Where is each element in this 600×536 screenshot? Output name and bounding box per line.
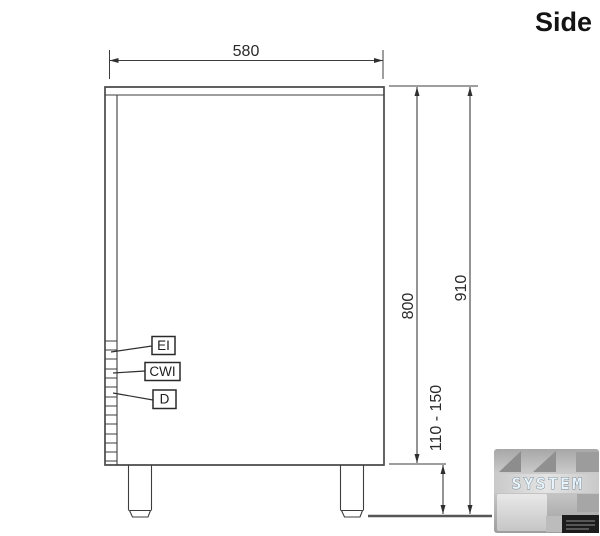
watermark-block-right [577, 494, 599, 512]
connection-strip-hatch [106, 341, 118, 461]
leader-line-d [113, 393, 153, 400]
dimension-top-width-value: 580 [233, 43, 260, 60]
leg-left [129, 465, 152, 511]
leg-right [341, 465, 364, 511]
watermark-dark-block [562, 515, 599, 533]
connection-label-d: D [160, 392, 170, 407]
watermark-block-top-right [576, 452, 599, 472]
watermark-block-bottom-mid [546, 516, 564, 532]
machine-outer-outline [105, 87, 384, 465]
dimension-body-height-value: 800 [400, 293, 417, 320]
watermark-block-bottom-left [497, 494, 547, 531]
legs [129, 465, 364, 517]
connection-label-ei: EI [157, 338, 170, 353]
dimension-top-width: 580 [110, 43, 384, 79]
dimension-overall-height-value: 910 [453, 275, 470, 302]
technical-drawing-page: SYSTEM 580 800 910 110 - 150 [0, 0, 600, 536]
connection-labels: EI CWI D [111, 337, 180, 409]
leg-right-foot [342, 511, 363, 518]
leader-line-cwi [113, 371, 145, 373]
view-title: Side [535, 7, 592, 37]
machine-body [105, 87, 384, 465]
watermark-brand-text: SYSTEM [512, 474, 585, 493]
dimension-leg-range-value: 110 - 150 [428, 385, 445, 452]
leg-left-foot [130, 511, 151, 518]
side-view-drawing: SYSTEM 580 800 910 110 - 150 [0, 0, 600, 536]
connection-label-cwi: CWI [149, 364, 175, 379]
dimension-right-group: 800 910 110 - 150 [389, 86, 478, 514]
watermark-logo: SYSTEM [494, 449, 599, 533]
